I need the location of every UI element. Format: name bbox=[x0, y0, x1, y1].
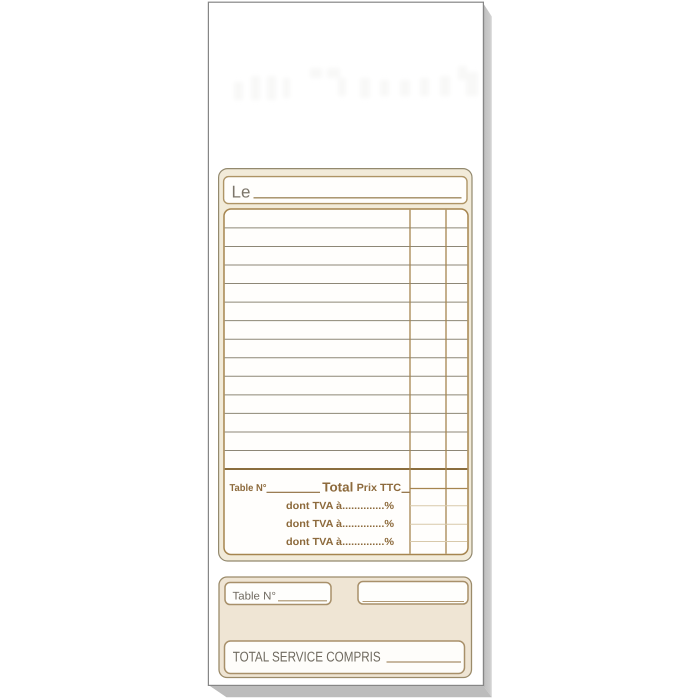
svg-text:Total: Total bbox=[322, 480, 353, 495]
svg-text:Table N°: Table N° bbox=[233, 591, 277, 603]
svg-text:Prix TTC: Prix TTC bbox=[357, 482, 402, 494]
svg-text:dont TVA à..............%: dont TVA à..............% bbox=[286, 501, 394, 512]
svg-text:dont TVA à..............%: dont TVA à..............% bbox=[286, 519, 394, 530]
svg-text:TOTAL SERVICE COMPRIS: TOTAL SERVICE COMPRIS bbox=[233, 650, 381, 666]
svg-text:Le: Le bbox=[232, 183, 251, 202]
svg-text:Table N°: Table N° bbox=[230, 483, 267, 494]
svg-text:dont TVA à..............%: dont TVA à..............% bbox=[286, 537, 394, 548]
